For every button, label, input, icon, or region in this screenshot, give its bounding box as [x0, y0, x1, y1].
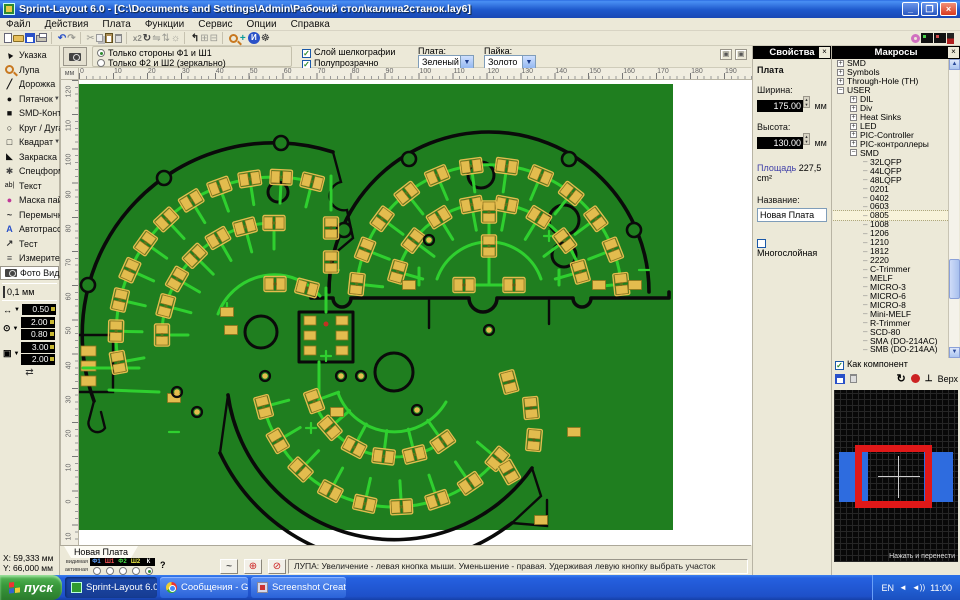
tool-rect[interactable]: □Квадрат▼ — [0, 135, 59, 150]
silk-options: ✓Слой шелкографии ✓Полупрозрачно — [302, 46, 395, 69]
tool-zoom[interactable]: Лупа — [0, 63, 59, 78]
copy-button[interactable] — [96, 32, 104, 45]
tool-fill-label: Закраска — [19, 152, 57, 162]
tool-measure[interactable]: ≡Измеритель — [0, 251, 59, 266]
shot-icon — [257, 582, 268, 593]
solder-color-value: Золото — [488, 57, 517, 67]
windows-flag-icon — [9, 581, 20, 593]
side-radio-group: Только стороны Ф1 и Ш1 Только Ф2 и Ш2 (з… — [92, 46, 292, 67]
expand-icon[interactable]: + — [837, 78, 844, 85]
layer-selector: Ф1Ш1Ф2Ш2К — [90, 558, 156, 575]
macro-footer: ✓Как компонент ↻ ⊥ Верх — [832, 358, 960, 390]
track-width-icon: ↔ — [3, 305, 12, 315]
cut-button[interactable]: ✂ — [86, 32, 94, 45]
close-icon[interactable]: × — [819, 47, 830, 58]
tree-item-48LQFP[interactable]: –48LQFP — [833, 175, 949, 184]
grid-icon — [3, 286, 5, 298]
grid-selector[interactable]: 0,1 мм — [0, 287, 59, 297]
width-label: Ширина: — [757, 85, 827, 95]
new-button[interactable] — [4, 32, 12, 45]
properties-title: Свойства — [769, 47, 814, 58]
solder-mask-view-icon — [911, 34, 920, 43]
system-tray: EN ◄ ◄)) 11:00 — [872, 575, 960, 600]
menu-bar: ФайлДействияПлатаФункцииСервисОпцииСправ… — [0, 18, 960, 31]
taskbar-task-1[interactable]: Sprint-Layout 6.0 — [65, 577, 157, 598]
restore-button[interactable]: ❐ — [921, 2, 938, 16]
pad-size-icon: ⊙ — [3, 323, 11, 334]
status-hint: ЛУПА: Увеличение - левая кнопка мыши. Ум… — [288, 559, 748, 574]
tool-panel: ▲УказкаЛупа╱Дорожка●Пятачок▼■SMD-Контакт… — [0, 46, 60, 575]
radio-side-bottom-label: Только Ф2 и Ш2 (зеркально) — [108, 58, 226, 68]
tree-item-0201[interactable]: –0201 — [833, 184, 949, 193]
photo-options-bar: Только стороны Ф1 и Ш1 Только Ф2 и Ш2 (з… — [60, 46, 751, 68]
as-component-checkbox[interactable]: ✓ — [835, 361, 844, 370]
properties-panel: Свойства× Плата Ширина: 175.00▲▼ мм Высо… — [752, 46, 831, 575]
layer-f1-view-icon — [921, 33, 933, 43]
ruler-vertical: 120110100908070605040302010010 — [61, 80, 79, 545]
board-side-button[interactable] — [947, 32, 955, 45]
close-icon[interactable]: × — [948, 47, 959, 58]
layer-f2-view-button[interactable] — [934, 32, 946, 45]
save-button[interactable] — [25, 32, 35, 45]
ruler-unit: мм — [61, 68, 79, 80]
scroll-up-icon[interactable]: ▲ — [949, 59, 960, 70]
task-label: Сообщения - Google ... — [181, 582, 248, 593]
height-spinner[interactable]: ▲▼ — [803, 133, 810, 145]
menu-Файл[interactable]: Файл — [6, 19, 31, 30]
cursor-y: 66,000 мм — [13, 563, 53, 573]
layer-visible-Ш1[interactable]: Ш1 — [103, 558, 116, 566]
expand-icon[interactable]: + — [850, 105, 857, 112]
tree-item-PIC-контроллеры[interactable]: +PIC-контроллеры — [833, 139, 949, 148]
layer-row-labels: видимаяактивная — [62, 558, 88, 574]
tool-rect-label: Квадрат — [19, 137, 53, 147]
board-color-value: Зеленый — [422, 57, 459, 67]
new-icon — [4, 33, 12, 43]
tool-fill-icon: ◣ — [3, 151, 16, 163]
application-window: Sprint-Layout 6.0 - [C:\Documents and Se… — [0, 0, 960, 600]
toolbar-separator — [184, 32, 188, 44]
chevron-down-icon[interactable]: ▼ — [14, 351, 20, 357]
minimize-button[interactable]: _ — [902, 2, 919, 16]
tool-rect-icon: □ — [3, 136, 16, 148]
pad-hole-field[interactable]: 0.80 — [21, 329, 55, 340]
silkscreen-checkbox[interactable]: ✓ — [302, 49, 311, 58]
zoom-tool-button[interactable] — [229, 32, 238, 45]
taskbar: пуск Sprint-Layout 6.0Сообщения - Google… — [0, 575, 960, 600]
tool-pad-label: Пятачок — [19, 94, 53, 104]
tool-smd-pad[interactable]: ■SMD-Контакт — [0, 106, 59, 121]
translucent-label: Полупрозрачно — [314, 58, 378, 68]
task-label: Sprint-Layout 6.0 — [86, 582, 157, 593]
board-tab[interactable]: Новая Плата — [64, 546, 138, 558]
tool-special-icon: ✱ — [3, 165, 16, 177]
chevron-down-icon[interactable]: ▼ — [54, 96, 60, 102]
tree-item-USER[interactable]: −USER — [833, 86, 949, 95]
duplicate-button[interactable]: x2 — [133, 32, 142, 45]
app-icon — [3, 3, 15, 15]
height-label: Высота: — [757, 122, 827, 132]
photo-mode-button[interactable] — [63, 47, 87, 66]
layer-visible-Ф2[interactable]: Ф2 — [116, 558, 129, 566]
toolbar-separator — [126, 32, 130, 44]
multilayer-checkbox[interactable]: ✓ — [757, 239, 766, 248]
close-button[interactable]: × — [940, 2, 957, 16]
tool-test-icon: ↗ — [3, 238, 16, 250]
tool-autoroute[interactable]: AАвтотрасса — [0, 222, 59, 237]
layer-visible-К[interactable]: К — [142, 558, 155, 566]
status-bar: видимаяактивная Ф1Ш1Ф2Ш2К ? ~ ⊕ ⊘ ЛУПА: … — [60, 558, 751, 575]
ruler-horizontal: 0102030405060708090100110120130140150160… — [79, 68, 752, 80]
tree-scrollbar[interactable]: ▲ ▼ — [948, 59, 959, 358]
language-indicator[interactable]: EN — [881, 583, 894, 593]
tool-test-label: Тест — [19, 239, 38, 249]
layer-active-Ш2[interactable] — [129, 566, 142, 575]
tray-icon[interactable]: ◄ — [899, 583, 907, 592]
tool-pointer-icon: ▲ — [1, 47, 19, 64]
radio-side-top-label: Только стороны Ф1 и Ш1 — [108, 48, 212, 58]
tool-text[interactable]: ab|Текст — [0, 179, 59, 194]
delete-button[interactable] — [114, 32, 122, 45]
board-name-input[interactable] — [757, 208, 827, 222]
pad-outer-field[interactable]: 2.00 — [21, 317, 55, 328]
tool-solder-mask-icon: ● — [3, 194, 16, 206]
cursor-position: X: 59,333 мм Y: 66,000 мм — [0, 553, 58, 573]
macros-title: Макросы — [875, 47, 918, 58]
macros-panel-toggle[interactable]: ▣ — [735, 49, 747, 60]
tool-jumper[interactable]: ~Перемычки — [0, 208, 59, 223]
clock: 11:00 — [930, 583, 952, 593]
chevron-down-icon[interactable]: ▼ — [13, 326, 19, 332]
menu-Опции[interactable]: Опции — [246, 19, 276, 30]
chevron-down-icon[interactable]: ▼ — [14, 307, 20, 313]
chrome-icon — [166, 582, 177, 593]
open-button[interactable] — [13, 32, 24, 45]
grid-value: 0,1 мм — [7, 287, 34, 297]
tool-photo-view[interactable]: Фото Вид — [0, 266, 59, 281]
tool-circle-icon: ○ — [3, 122, 16, 134]
layer-active-Ш1[interactable] — [103, 566, 116, 575]
swap-dimensions-button[interactable]: ⇄ — [0, 367, 59, 378]
width-spinner[interactable]: ▲▼ — [803, 96, 810, 108]
start-label: пуск — [24, 580, 53, 595]
menu-Функции[interactable]: Функции — [145, 19, 184, 30]
solder-dot-icon[interactable] — [911, 374, 920, 383]
group-button[interactable]: ⊞ — [200, 32, 208, 45]
tool-smd-pad-icon: ■ — [3, 107, 16, 119]
silkscreen-label: Слой шелкографии — [314, 47, 395, 57]
tree-item-Heat Sinks[interactable]: +Heat Sinks — [833, 113, 949, 122]
side-label: Верх — [938, 374, 958, 384]
macros-panel: Макросы× +SMD+Symbols+Through-Hole (TH)−… — [831, 46, 960, 575]
sprint-icon — [71, 582, 82, 593]
save-icon — [25, 33, 35, 43]
ungroup-button[interactable]: ⊟ — [210, 32, 218, 45]
tree-item-0603[interactable]: –0603 — [833, 202, 949, 211]
layer-f2-view-icon — [934, 33, 946, 43]
crosshair-icon — [898, 456, 899, 498]
tool-circle-label: Круг / Дуга — [19, 123, 63, 133]
radio-side-top[interactable] — [97, 49, 105, 57]
menu-Справка[interactable]: Справка — [291, 19, 330, 30]
layer-active-Ф2[interactable] — [116, 566, 129, 575]
tool-measure-icon: ≡ — [3, 252, 16, 264]
tool-test[interactable]: ↗Тест — [0, 237, 59, 252]
cursor-x: 59,333 мм — [13, 553, 53, 563]
layer-active-К[interactable] — [142, 566, 155, 575]
collapse-icon[interactable]: − — [850, 149, 857, 156]
toolbar-separator — [222, 32, 226, 44]
track-width-field[interactable]: 0.50 — [22, 304, 56, 315]
layer-active-Ф1[interactable] — [90, 566, 103, 575]
as-component-label: Как компонент — [847, 359, 908, 369]
taskbar-task-2[interactable]: Сообщения - Google ... — [160, 577, 248, 598]
title-bar[interactable]: Sprint-Layout 6.0 - [C:\Documents and Se… — [0, 0, 960, 18]
smd-width-field[interactable]: 3.00 — [21, 342, 55, 353]
pcb-drawing[interactable] — [79, 80, 752, 545]
tree-item-1206[interactable]: –1206 — [833, 229, 949, 238]
tool-zoom-label: Лупа — [19, 65, 39, 75]
scroll-down-icon[interactable]: ▼ — [949, 347, 960, 358]
toolbar-separator — [51, 32, 55, 44]
print-button[interactable] — [36, 32, 47, 45]
board-section-label: Плата — [757, 65, 827, 75]
name-label: Название: — [757, 195, 827, 205]
menu-Плата[interactable]: Плата — [102, 19, 130, 30]
copy-icon — [96, 34, 103, 42]
track-bend-icon[interactable]: ~ — [220, 559, 238, 574]
delete-macro-icon[interactable] — [850, 374, 857, 383]
multilayer-label: Многослойная — [757, 248, 817, 258]
layer-f1-view-button[interactable] — [921, 32, 933, 45]
board-width-field[interactable]: 175.00 — [757, 100, 803, 112]
area-label: Площадь — [757, 163, 796, 173]
save-macro-icon[interactable] — [835, 374, 845, 384]
info-icon: И — [248, 32, 260, 44]
collapse-icon[interactable]: − — [837, 87, 844, 94]
tree-item-1812[interactable]: –1812 — [833, 247, 949, 256]
align-button[interactable]: ☼ — [171, 32, 180, 45]
rotate-macro-icon[interactable]: ↻ — [897, 372, 906, 385]
tool-pad-icon: ● — [3, 93, 16, 105]
tree-item-SMB (DO-214AA)[interactable]: –SMB (DO-214AA) — [833, 345, 949, 354]
tool-text-icon: ab| — [3, 180, 16, 192]
delete-icon — [115, 34, 122, 43]
disable-icon[interactable]: ⊘ — [268, 559, 286, 574]
board-height-field[interactable]: 130.00 — [757, 137, 803, 149]
macro-tree[interactable]: +SMD+Symbols+Through-Hole (TH)−USER+DIL+… — [833, 59, 949, 358]
tool-special[interactable]: ✱Спецформы — [0, 164, 59, 179]
smd-height-field[interactable]: 2.00 — [21, 354, 55, 365]
macro-preview[interactable]: Нажать и перенести — [834, 390, 958, 562]
tree-item-0805[interactable]: –0805 — [833, 211, 949, 220]
tool-text-label: Текст — [19, 181, 42, 191]
tool-photo-view-icon — [4, 267, 17, 279]
tool-photo-view-label: Фото Вид — [20, 268, 59, 278]
scroll-thumb[interactable] — [949, 259, 960, 299]
expand-icon[interactable]: + — [850, 123, 857, 130]
toolbar-separator — [80, 32, 84, 44]
start-button[interactable]: пуск — [0, 575, 62, 600]
board-side-icon — [947, 33, 954, 44]
pad-size-row: ⊙▼ 2.00 0.80 — [0, 317, 59, 340]
tool-track-label: Дорожка — [19, 79, 55, 89]
expand-icon[interactable]: + — [850, 96, 857, 103]
paste-button[interactable] — [105, 32, 113, 45]
volume-icon[interactable]: ◄)) — [912, 583, 925, 592]
camera-icon — [69, 53, 81, 61]
tree-item-1210[interactable]: –1210 — [833, 238, 949, 247]
tree-item-DIL[interactable]: +DIL — [833, 95, 949, 104]
component-side-icon[interactable]: ⊥ — [925, 373, 933, 384]
redo-button[interactable]: ↷ — [67, 32, 75, 45]
tool-jumper-icon: ~ — [3, 209, 16, 221]
zoom-tool-icon — [229, 34, 238, 43]
tool-track[interactable]: ╱Дорожка — [0, 77, 59, 92]
tool-pad[interactable]: ●Пятачок▼ — [0, 92, 59, 107]
paste-icon — [105, 33, 113, 43]
mirror-v-button[interactable]: ⇅ — [162, 32, 170, 45]
tool-fill[interactable]: ◣Закраска — [0, 150, 59, 165]
menu-Действия[interactable]: Действия — [45, 19, 89, 30]
expand-icon[interactable]: + — [850, 140, 857, 147]
expand-icon[interactable]: + — [837, 60, 844, 67]
preview-hint: Нажать и перенести — [889, 553, 955, 560]
open-icon — [13, 35, 24, 42]
board-tab-strip: Новая Плата — [60, 545, 751, 558]
origin-target-icon[interactable]: ⊕ — [244, 559, 262, 574]
expand-icon[interactable]: + — [837, 69, 844, 76]
tool-circle[interactable]: ○Круг / Дуга — [0, 121, 59, 136]
undo-button[interactable]: ↶ — [58, 32, 66, 45]
tool-autoroute-icon: A — [3, 223, 16, 235]
task-label: Screenshot Creator — [272, 582, 346, 593]
rotate-button[interactable]: ↻ — [143, 32, 151, 45]
crosshair-icon — [878, 476, 920, 477]
layer-visible-Ш2[interactable]: Ш2 — [129, 558, 142, 566]
tool-pointer-label: Указка — [19, 50, 47, 60]
menu-Сервис[interactable]: Сервис — [198, 19, 232, 30]
taskbar-task-3[interactable]: Screenshot Creator — [251, 577, 346, 598]
smd-size-row: ▣▼ 3.00 2.00 — [0, 342, 59, 365]
tool-solder-mask[interactable]: ●Маска пайки — [0, 193, 59, 208]
layer-visible-Ф1[interactable]: Ф1 — [90, 558, 103, 566]
expand-icon[interactable]: + — [850, 114, 857, 121]
tool-zoom-icon — [3, 64, 16, 76]
settings-button[interactable]: ☸ — [261, 32, 270, 45]
info-button[interactable]: И — [248, 32, 260, 45]
expand-icon[interactable]: + — [850, 131, 857, 138]
track-width-row: ↔▼ 0.50 — [0, 304, 59, 315]
solder-mask-view-button[interactable] — [911, 32, 920, 45]
layer-help[interactable]: ? — [160, 560, 166, 570]
main-toolbar: ↶↷✂x2↻⇋⇅☼↰⊞⊟+И☸ — [0, 31, 960, 46]
tool-track-icon: ╱ — [3, 78, 16, 90]
mirror-h-button[interactable]: ⇋ — [152, 32, 160, 45]
tree-item-0402[interactable]: –0402 — [833, 193, 949, 202]
rotate-board-button[interactable]: ↰ — [191, 32, 199, 45]
tree-item-1008[interactable]: –1008 — [833, 220, 949, 229]
tool-pointer[interactable]: ▲Указка — [0, 48, 59, 63]
pcb-canvas-area[interactable]: мм 0102030405060708090100110120130140150… — [60, 68, 751, 545]
print-icon — [36, 35, 47, 42]
smd-size-icon: ▣ — [3, 348, 12, 359]
window-title: Sprint-Layout 6.0 - [C:\Documents and Se… — [19, 3, 900, 15]
radio-side-bottom[interactable] — [97, 59, 105, 67]
properties-panel-toggle[interactable]: ▣ — [720, 49, 732, 60]
